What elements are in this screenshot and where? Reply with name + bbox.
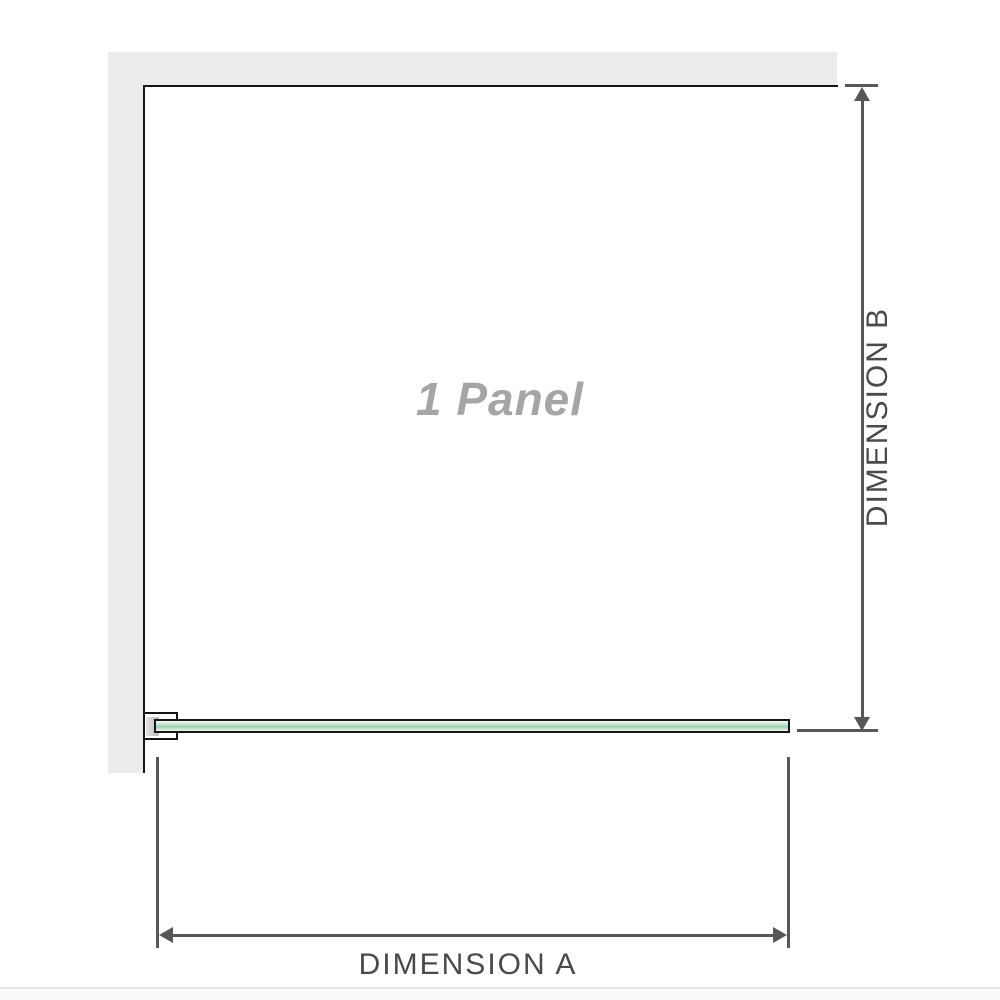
shower-panel-diagram: 1 Panel DIMENSION B DIMENSION A: [0, 0, 1000, 1000]
dimension-a-right-tick: [787, 757, 790, 948]
glass-panel-bar: [154, 719, 790, 733]
dimension-a-left-tick: [156, 757, 159, 948]
arrow-left-icon: [159, 927, 173, 943]
arrow-up-icon: [854, 87, 870, 101]
wall-left: [108, 52, 143, 773]
wall-top: [108, 52, 837, 85]
arrow-down-icon: [854, 717, 870, 731]
dimension-b-label: DIMENSION B: [861, 267, 895, 567]
panel-count-label: 1 Panel: [350, 372, 650, 426]
panel-outline: [143, 85, 838, 773]
dimension-a-label: DIMENSION A: [318, 948, 618, 982]
arrow-right-icon: [773, 927, 787, 943]
dimension-a-line: [163, 934, 783, 937]
footer-strip: [0, 989, 1000, 1000]
